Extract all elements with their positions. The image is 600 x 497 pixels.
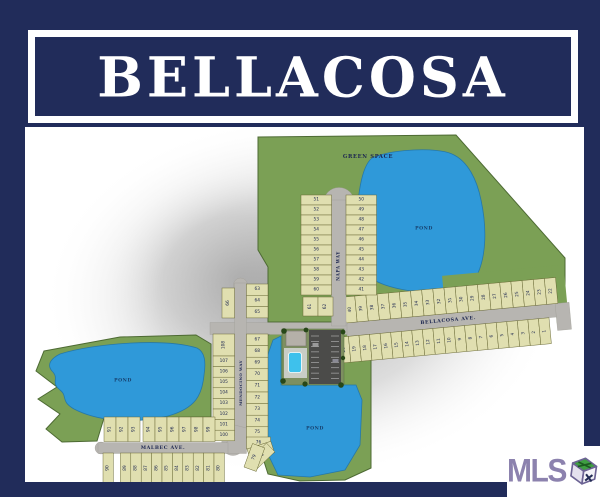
lot-number: 24 <box>525 290 532 296</box>
screenshot-root: 4039383736353433323130292827262524232221… <box>0 0 600 497</box>
lot-number: 75 <box>255 429 261 435</box>
lot: 106 <box>213 367 235 378</box>
lot: 47 <box>346 225 377 235</box>
lot-number: 68 <box>255 348 261 354</box>
lot: 42 <box>346 275 377 285</box>
lot: 22 <box>544 277 558 304</box>
lot-number: 12 <box>425 339 432 345</box>
lot-number: 49 <box>359 207 365 213</box>
lot-number: 69 <box>255 360 261 366</box>
lot: 88 <box>131 453 141 483</box>
lot-number: 36 <box>391 302 398 308</box>
lot-number: 81 <box>205 465 211 471</box>
lot-number: 91 <box>107 426 113 432</box>
lot: 100 <box>213 430 235 441</box>
lot: 73 <box>247 404 269 416</box>
lot-number: 54 <box>314 227 320 233</box>
lot-number: 32 <box>436 298 443 304</box>
lot: 68 <box>247 346 269 358</box>
lot: 71 <box>247 380 269 392</box>
lot-number: 66 <box>225 300 231 306</box>
lot: 62 <box>318 297 333 316</box>
lot: 108 <box>213 334 235 356</box>
lot-number: 82 <box>195 465 201 471</box>
lot: 89 <box>120 453 130 483</box>
street-label-malbec: MALBEC AVE. <box>141 445 186 451</box>
lot-number: 33 <box>425 299 432 305</box>
lot-number: 17 <box>372 344 379 350</box>
lot: 53 <box>301 215 332 225</box>
lot: 54 <box>301 225 332 235</box>
lot: 43 <box>346 265 377 275</box>
lot: 92 <box>116 417 128 442</box>
lot: 86 <box>152 453 162 483</box>
lot-number: 47 <box>359 227 365 233</box>
lot: 83 <box>183 453 193 483</box>
lot: 82 <box>193 453 203 483</box>
pond-label-ne: POND <box>415 226 433 232</box>
lot-number: 87 <box>143 465 149 471</box>
lot-number: 67 <box>255 336 261 342</box>
title-banner: BELLACOSA <box>28 30 578 123</box>
lot: 98 <box>191 417 203 442</box>
lot-number: 26 <box>503 292 510 298</box>
lot: 1 <box>538 318 551 345</box>
lot: 55 <box>301 235 332 245</box>
lot-number: 44 <box>359 257 365 263</box>
lot-number: 92 <box>119 426 125 432</box>
lot-number: 39 <box>358 305 365 311</box>
lot: 57 <box>301 255 332 265</box>
lot-number: 29 <box>469 295 476 301</box>
lot: 80 <box>214 453 224 483</box>
lot-number: 46 <box>359 237 365 243</box>
lot: 61 <box>303 297 318 316</box>
lot-number: 37 <box>380 303 387 309</box>
lot: 52 <box>301 205 332 215</box>
lot-number: 10 <box>446 337 453 343</box>
lot-number: 43 <box>359 267 365 273</box>
lot: 75 <box>247 427 269 439</box>
lot-number: 94 <box>146 426 152 432</box>
lot-number: 84 <box>174 465 180 471</box>
lot: 59 <box>301 275 332 285</box>
lot: 90 <box>103 453 113 483</box>
lot-number: 53 <box>314 217 320 223</box>
lot-number: 30 <box>458 296 465 302</box>
lot-number: 80 <box>216 465 222 471</box>
lot: 74 <box>247 415 269 427</box>
lot: 72 <box>247 392 269 404</box>
lot-number: 38 <box>369 304 376 310</box>
lot: 103 <box>213 398 235 409</box>
lot-number: 19 <box>351 346 358 352</box>
lot-number: 14 <box>404 341 411 347</box>
lot: 66 <box>222 288 235 318</box>
lot: 99 <box>203 417 215 442</box>
lot-number: 56 <box>314 247 320 253</box>
lot: 104 <box>213 388 235 399</box>
lot-number: 60 <box>314 287 320 293</box>
lot-number: 15 <box>393 342 400 348</box>
lot-number: 50 <box>359 197 365 203</box>
lot: 95 <box>155 417 167 442</box>
lot-number: 95 <box>158 426 164 432</box>
lot-number: 52 <box>314 207 320 213</box>
lot-number: 16 <box>383 343 390 349</box>
lot: 63 <box>247 284 269 295</box>
frame-left <box>0 0 25 497</box>
mls-cube-icon <box>567 452 600 492</box>
lot: 107 <box>213 356 235 367</box>
lot-number: 22 <box>547 288 554 294</box>
lot: 64 <box>247 295 269 306</box>
lot-number: 108 <box>220 341 226 349</box>
pond-label-west: POND <box>114 378 132 384</box>
lot: 49 <box>346 205 377 215</box>
lot-number: 25 <box>514 291 521 297</box>
lot-number: 97 <box>182 426 188 432</box>
lot: 48 <box>346 215 377 225</box>
lot-number: 102 <box>220 411 228 417</box>
lot: 93 <box>128 417 140 442</box>
parked-car <box>313 343 319 346</box>
mendocino-way-road <box>235 283 247 433</box>
lot-number: 73 <box>255 406 261 412</box>
lot-number: 34 <box>414 300 421 306</box>
lot-number: 105 <box>220 379 228 385</box>
lot-number: 27 <box>492 293 499 299</box>
lot-number: 65 <box>255 309 261 315</box>
lot-number: 55 <box>314 237 320 243</box>
lot-number: 61 <box>307 304 313 310</box>
lot-number: 98 <box>194 426 200 432</box>
lot-number: 100 <box>220 432 228 438</box>
lot-number: 41 <box>359 287 365 293</box>
lot: 96 <box>167 417 179 442</box>
lot-number: 104 <box>220 390 228 396</box>
lot-number: 103 <box>220 400 228 406</box>
lot: 105 <box>213 377 235 388</box>
lot-number: 89 <box>122 465 128 471</box>
frame-right <box>584 0 600 497</box>
lot: 65 <box>247 307 269 318</box>
lot-number: 83 <box>185 465 191 471</box>
lot-number: 85 <box>164 465 170 471</box>
lot-number: 96 <box>170 426 176 432</box>
lot-number: 63 <box>255 286 261 292</box>
lot: 60 <box>301 285 332 295</box>
lot-number: 72 <box>255 394 261 400</box>
lot: 69 <box>247 357 269 369</box>
street-label-mendocino: MENDOCINO WAY <box>238 360 243 406</box>
amenity-center <box>280 328 345 388</box>
lot-number: 64 <box>255 297 261 303</box>
lot: 102 <box>213 409 235 420</box>
lot-number: 70 <box>255 371 261 377</box>
lot-number: 31 <box>447 297 454 303</box>
lot-number: 90 <box>105 465 111 471</box>
lot-number: 58 <box>314 267 320 273</box>
lot-number: 45 <box>359 247 365 253</box>
lot-number: 23 <box>536 289 543 295</box>
bellacosa-ave-end-stub <box>555 302 571 330</box>
lot: 85 <box>162 453 172 483</box>
lot: 81 <box>204 453 214 483</box>
lot: 87 <box>141 453 151 483</box>
lot-number: 59 <box>314 277 320 283</box>
lot-number: 107 <box>220 358 228 364</box>
lot: 51 <box>301 195 332 205</box>
pool <box>289 353 302 373</box>
street-label-napa: NAPA WAY <box>337 251 342 281</box>
mls-logo-text: MLS <box>507 453 566 490</box>
lot-number: 101 <box>220 421 228 427</box>
lot: 45 <box>346 245 377 255</box>
lot-number: 11 <box>436 338 443 344</box>
lot-number: 28 <box>480 294 487 300</box>
lot-number: 18 <box>362 345 369 351</box>
lot: 41 <box>346 285 377 295</box>
clubhouse-building <box>286 331 306 346</box>
mls-watermark: MLS <box>507 446 600 497</box>
lot: 97 <box>179 417 191 442</box>
lot-number: 13 <box>414 340 421 346</box>
lot: 70 <box>247 369 269 381</box>
lot: 91 <box>104 417 116 442</box>
lot: 56 <box>301 245 332 255</box>
lot-number: 35 <box>402 301 409 307</box>
lot: 44 <box>346 255 377 265</box>
pond-label-central: POND <box>306 426 324 432</box>
page-title: BELLACOSA <box>97 49 509 104</box>
lot-number: 88 <box>133 465 139 471</box>
green-space-label: GREEN SPACE <box>343 154 393 160</box>
lot: 67 <box>247 334 269 346</box>
lot: 101 <box>213 420 235 431</box>
lot: 58 <box>301 265 332 275</box>
lot-number: 86 <box>153 465 159 471</box>
lot-number: 99 <box>206 426 212 432</box>
lot-number: 93 <box>131 426 137 432</box>
parked-car <box>333 359 339 362</box>
lot-number: 42 <box>359 277 365 283</box>
lot-number: 51 <box>314 197 320 203</box>
lot-number: 62 <box>322 304 328 310</box>
lot-number: 74 <box>255 418 261 424</box>
lot: 46 <box>346 235 377 245</box>
lot-number: 40 <box>347 306 354 312</box>
lot: 84 <box>172 453 182 483</box>
lot: 94 <box>143 417 155 442</box>
lot-number: 71 <box>255 383 261 389</box>
lot-number: 106 <box>220 368 228 374</box>
lot-number: 57 <box>314 257 320 263</box>
lot-number: 48 <box>359 217 365 223</box>
lot: 50 <box>346 195 377 205</box>
